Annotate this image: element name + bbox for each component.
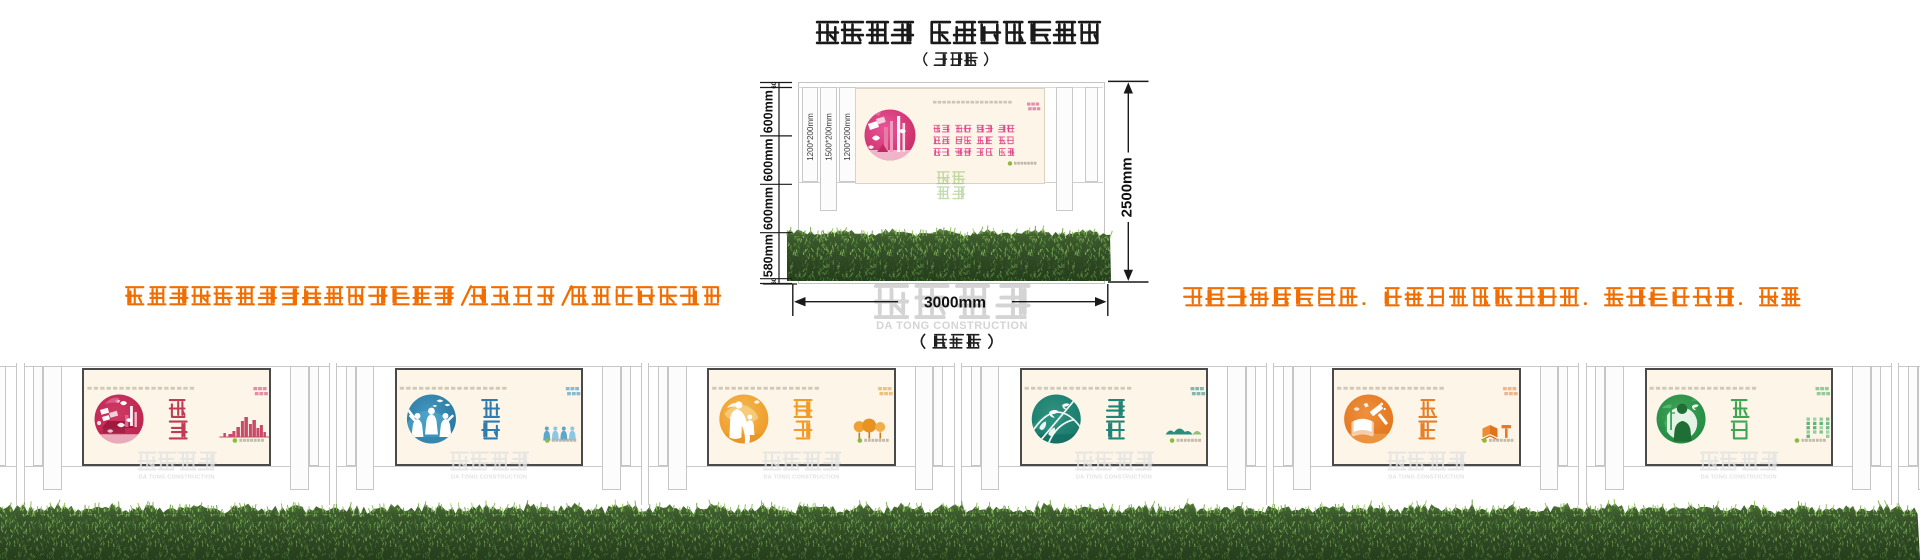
svg-text:DA TONG CONSTRUCTION: DA TONG CONSTRUCTION xyxy=(1701,475,1777,481)
